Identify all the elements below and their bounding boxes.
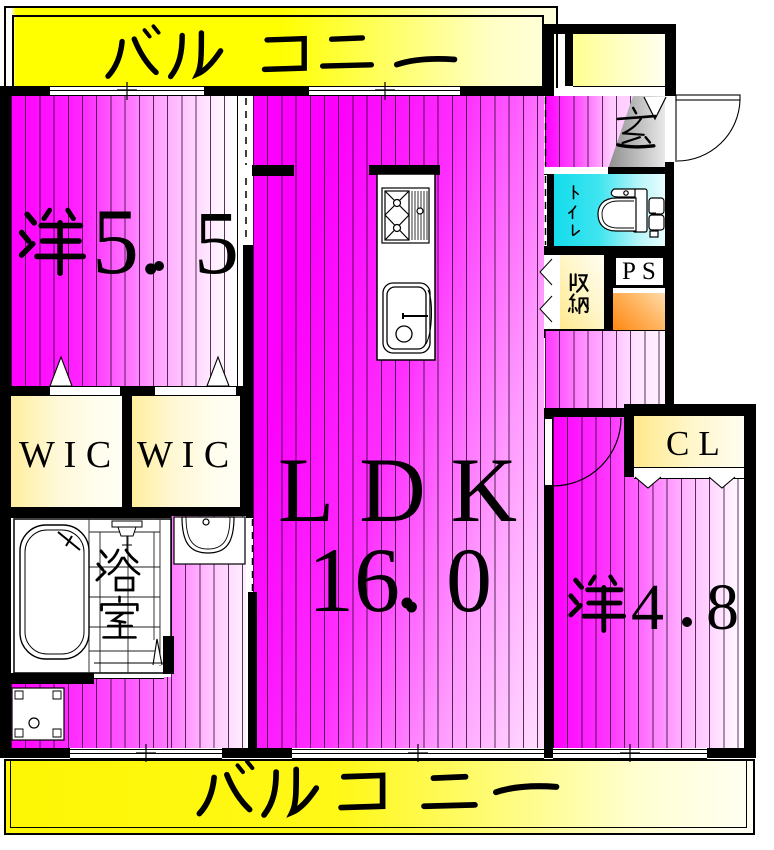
svg-text:16. 0: 16. 0 (308, 529, 492, 631)
svg-text:4: 4 (631, 571, 664, 644)
svg-text:W I C: W I C (137, 434, 229, 476)
svg-text:LDK: LDK (278, 439, 542, 541)
svg-text:5.: 5. (92, 190, 163, 294)
svg-text:8: 8 (706, 571, 739, 644)
svg-text:W I C: W I C (19, 434, 111, 476)
svg-text:CL: CL (666, 424, 729, 463)
svg-text:PS: PS (622, 258, 662, 285)
svg-text:5: 5 (194, 194, 239, 293)
